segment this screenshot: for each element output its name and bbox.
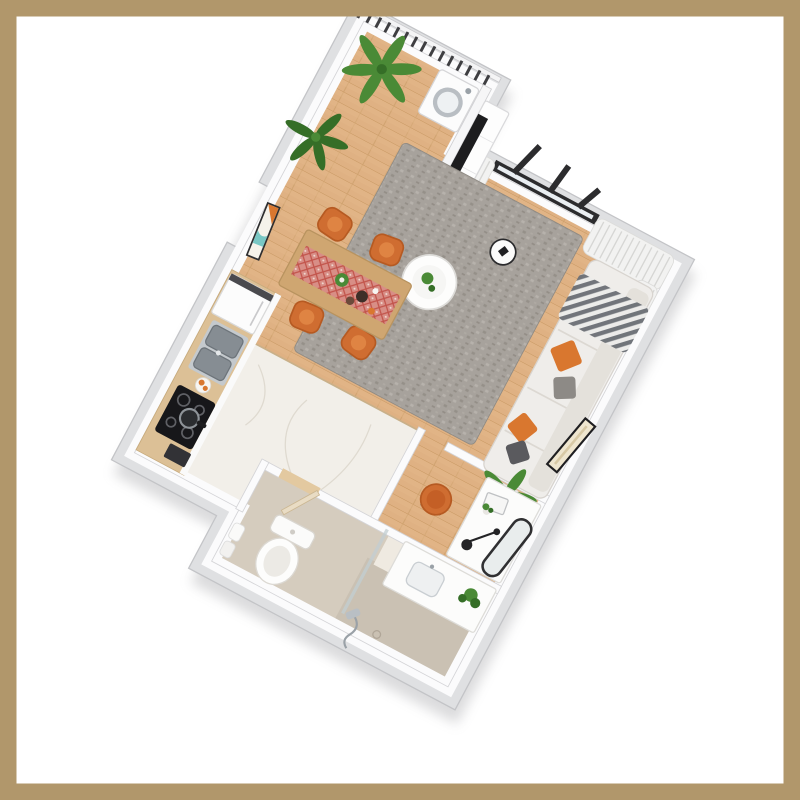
floor-plan-image bbox=[0, 0, 800, 800]
gray-pillow bbox=[553, 376, 576, 399]
floor-plan-render bbox=[0, 0, 800, 800]
